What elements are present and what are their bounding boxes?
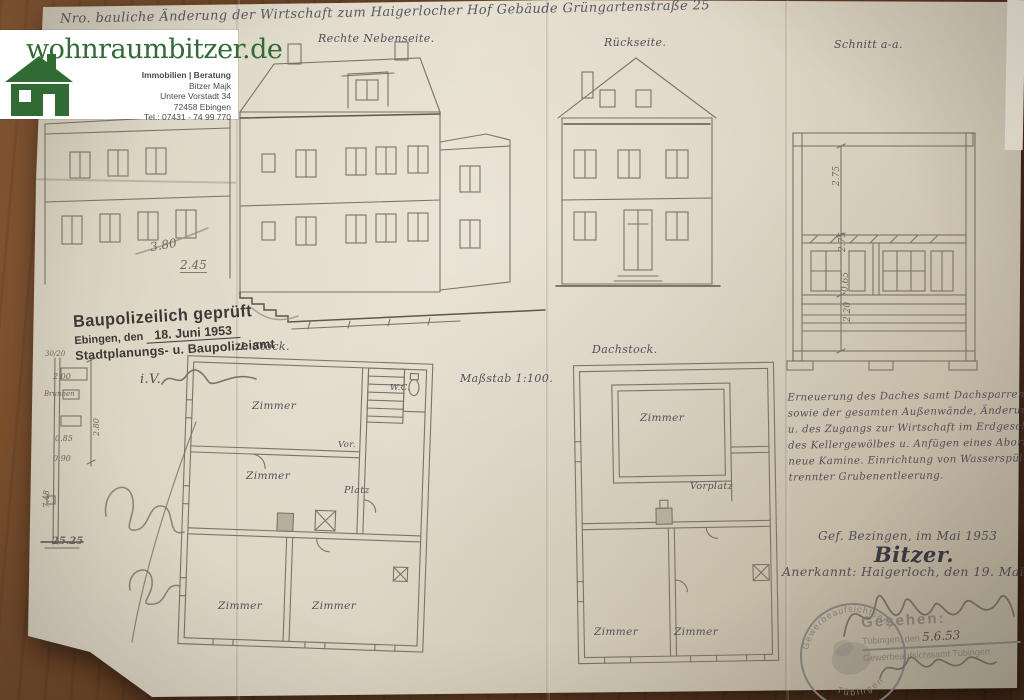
section-drawing (785, 125, 980, 373)
room-label: Zimmer (594, 626, 638, 638)
brand-name: Bitzer Majk (142, 81, 231, 92)
second-signature-squiggle (878, 648, 998, 690)
dim-detail-f: 7.48 (42, 490, 51, 508)
brand-wordmark: wohnraumbitzer.de (26, 34, 282, 65)
stamp-iv-signature-label: i.V. (140, 372, 161, 387)
note-line: neue Kamine. Einrichtung von Wasserspülu… (788, 451, 1022, 470)
dim-detail-b: 2.00 (53, 372, 71, 381)
brand-address: Immobilien | Beratung Bitzer Majk Untere… (142, 70, 231, 123)
brand-city: 72458 Ebingen (142, 102, 231, 113)
room-label: Zimmer (640, 412, 684, 424)
approval-signature-squiggle (160, 368, 260, 392)
wohnraumbitzer-watermark: wohnraumbitzer.de Immobilien | Beratung … (0, 30, 238, 119)
dim-section-b: 2.75 (838, 232, 848, 252)
dim-detail-g: 25.25 (52, 536, 83, 547)
brand-tagline: Immobilien | Beratung (142, 70, 231, 81)
photographed-building-plan: Nro. bauliche Änderung der Wirtschaft zu… (0, 0, 1024, 700)
underlying-sheet-edge (1005, 0, 1024, 150)
dim-detail-e: 0.90 (53, 454, 71, 463)
brand-phone: Tel.: 07431 - 74 99 770 (142, 112, 231, 123)
brand-street: Untere Vorstadt 34 (142, 91, 231, 102)
room-label: Zimmer (674, 626, 718, 638)
approved-note: Anerkannt: Haigerloch, den 19. Mai 1953 (782, 564, 1024, 579)
room-label: W.C. (390, 383, 410, 393)
dim-elevation-b: 2.45 (180, 258, 207, 273)
dim-detail-word: Brunnen (44, 390, 75, 398)
room-label: Zimmer (252, 400, 296, 412)
rear-elevation-drawing (548, 48, 728, 293)
label-section: Schnitt a-a. (834, 38, 903, 51)
dim-detail-a: 30/20 (45, 350, 65, 358)
label-scale: Maßstab 1:100. (460, 372, 553, 385)
room-label: Zimmer (312, 600, 356, 612)
note-line: trennter Grubenentleerung. (788, 467, 1022, 486)
dim-section-d: 2.20 (843, 302, 853, 322)
room-label: Platz (344, 485, 370, 496)
blue-pen-annotation (92, 420, 222, 645)
dim-section-c: 0.65 (841, 272, 851, 292)
room-label: Zimmer (246, 470, 290, 482)
room-label: Vor. (338, 440, 356, 450)
room-label: Vorplatz (690, 481, 733, 492)
dim-section-a: 2.75 (832, 166, 842, 186)
made-note: Gef. Bezingen, im Mai 1953 (818, 529, 997, 543)
room-label: Zimmer (218, 600, 262, 612)
handwritten-notes: Erneuerung des Daches samt Dachsparren u… (787, 387, 1022, 486)
dim-detail-d: 0.85 (55, 434, 73, 443)
